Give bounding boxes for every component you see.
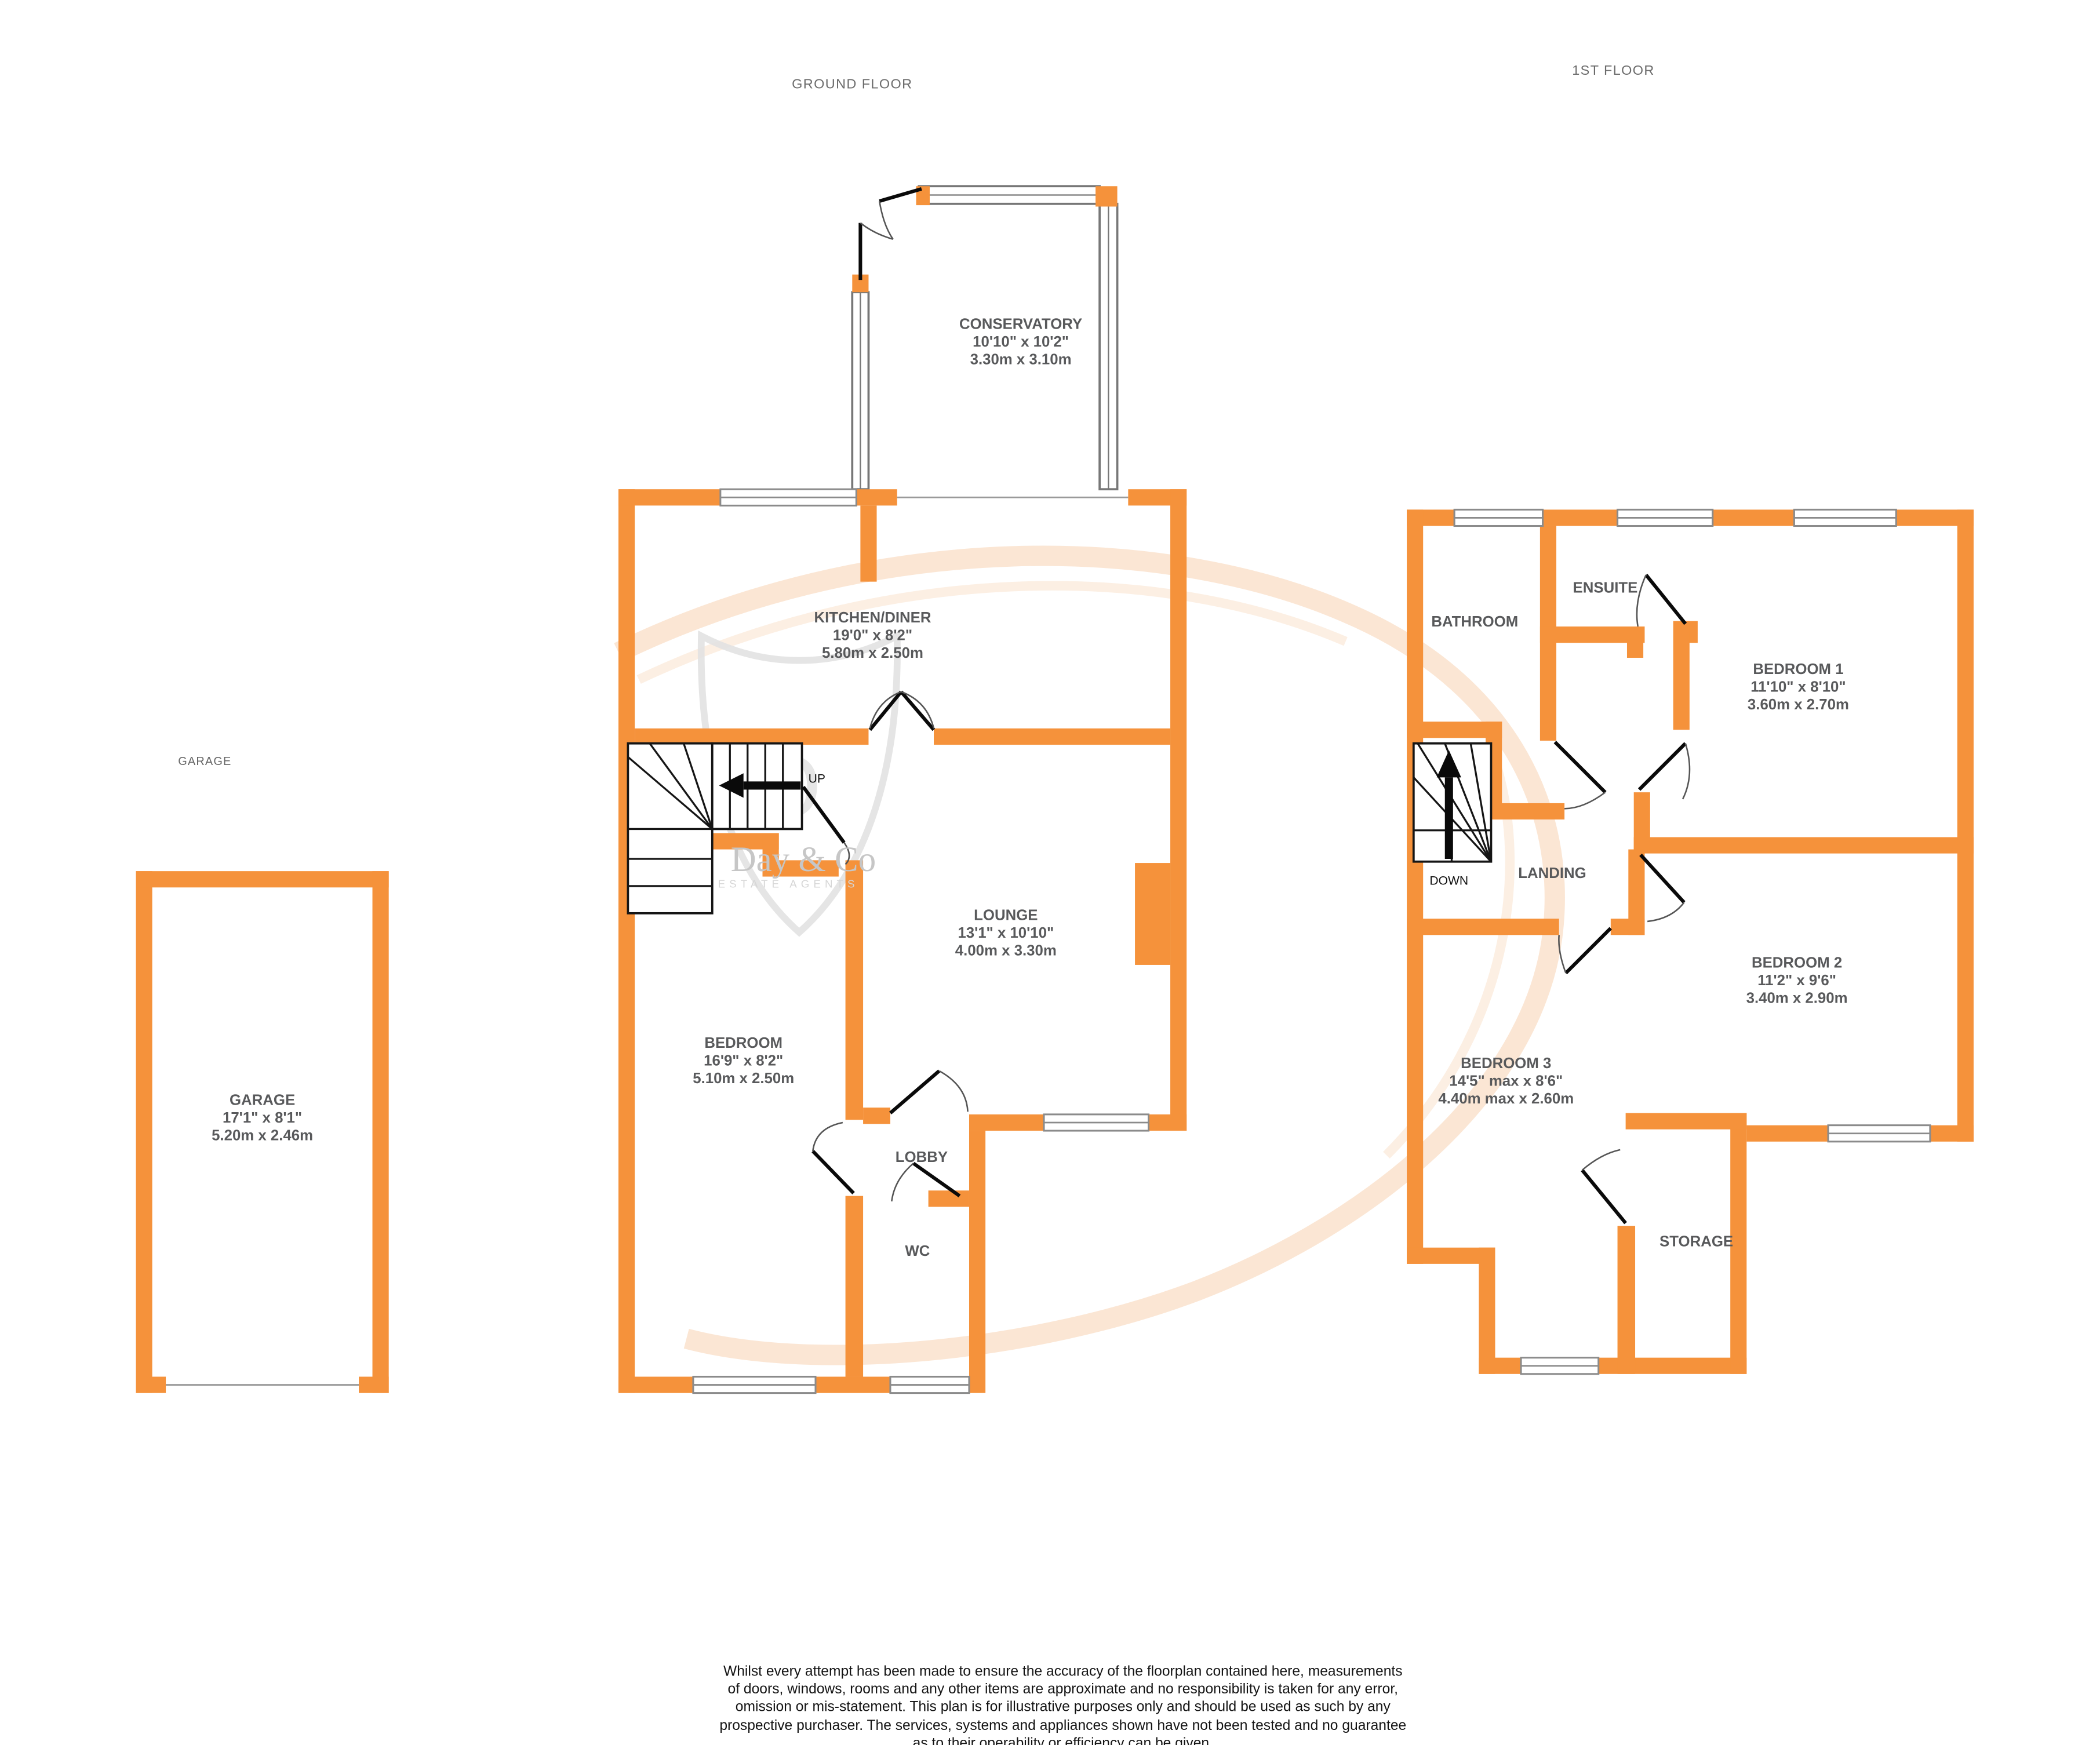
stairs-down xyxy=(1414,744,1491,862)
door-storage xyxy=(1582,1150,1626,1223)
room-label-storage: STORAGE xyxy=(1659,1234,1733,1251)
door-bedroom1 xyxy=(1639,744,1690,799)
door-bedroom xyxy=(813,1123,853,1193)
window xyxy=(1794,509,1896,526)
room-label-bedroom2: BEDROOM 2 11'2" x 9'6" 3.40m x 2.90m xyxy=(1746,956,1848,1008)
conservatory-glazed-wall-left xyxy=(852,292,868,489)
room-label-bedroom1: BEDROOM 1 11'10" x 8'10" 3.60m x 2.70m xyxy=(1748,662,1849,715)
window xyxy=(1828,1125,1930,1142)
door-bedroom3 xyxy=(1559,928,1610,973)
door-kitchen-lounge xyxy=(870,692,934,730)
window xyxy=(1521,1358,1599,1374)
window xyxy=(693,1376,816,1393)
door-bathroom xyxy=(1555,742,1606,808)
chimney-breast xyxy=(1135,863,1170,965)
room-label-bedroom3: BEDROOM 3 14'5" max x 8'6" 4.40m max x 2… xyxy=(1438,1056,1574,1109)
floorplan-drawing: D xyxy=(0,0,2100,1745)
floorplan-canvas: D xyxy=(0,0,2100,1745)
room-label-conservatory: CONSERVATORY 10'10" x 10'2" 3.30m x 3.10… xyxy=(959,316,1082,369)
window xyxy=(890,1376,969,1393)
room-label-bathroom: BATHROOM xyxy=(1431,614,1518,632)
ground-floor-title: GROUND FLOOR xyxy=(792,78,912,93)
garage-caption: GARAGE xyxy=(178,754,231,767)
window xyxy=(720,489,857,505)
room-label-bedroom-gf: BEDROOM 16'9" x 8'2" 5.10m x 2.50m xyxy=(693,1036,794,1088)
conservatory-french-doors xyxy=(860,189,922,280)
room-label-garage: GARAGE 17'1" x 8'1" 5.20m x 2.46m xyxy=(212,1092,313,1145)
conservatory-glazed-wall-top xyxy=(919,186,1100,203)
conservatory-glazed-wall-right xyxy=(1100,204,1117,489)
room-label-ensuite: ENSUITE xyxy=(1573,580,1638,598)
stairs-down-label: DOWN xyxy=(1429,874,1468,887)
conservatory-post xyxy=(1096,186,1118,206)
window xyxy=(1618,509,1713,526)
door-bedroom2 xyxy=(1640,855,1684,921)
room-label-lounge: LOUNGE 13'1" x 10'10" 4.00m x 3.30m xyxy=(955,908,1057,960)
first-floor-title: 1ST FLOOR xyxy=(1572,64,1655,79)
window xyxy=(1454,509,1542,526)
room-label-lobby: LOBBY xyxy=(896,1150,948,1167)
stairs-up-label: UP xyxy=(809,772,825,785)
watermark-agency-tagline: ESTATE AGENTS xyxy=(718,878,859,890)
door-ensuite xyxy=(1637,575,1686,626)
window xyxy=(1044,1114,1149,1131)
door-lounge-lobby xyxy=(890,1071,968,1113)
room-label-wc: WC xyxy=(905,1244,930,1261)
watermark-agency-name: Day & Co xyxy=(731,840,876,880)
room-label-landing: LANDING xyxy=(1518,866,1586,883)
floorplan-page: D xyxy=(0,0,2100,1745)
room-label-kitchen-diner: KITCHEN/DINER 19'0" x 8'2" 5.80m x 2.50m xyxy=(814,610,931,663)
disclaimer-text: Whilst every attempt has been made to en… xyxy=(719,1663,1406,1745)
